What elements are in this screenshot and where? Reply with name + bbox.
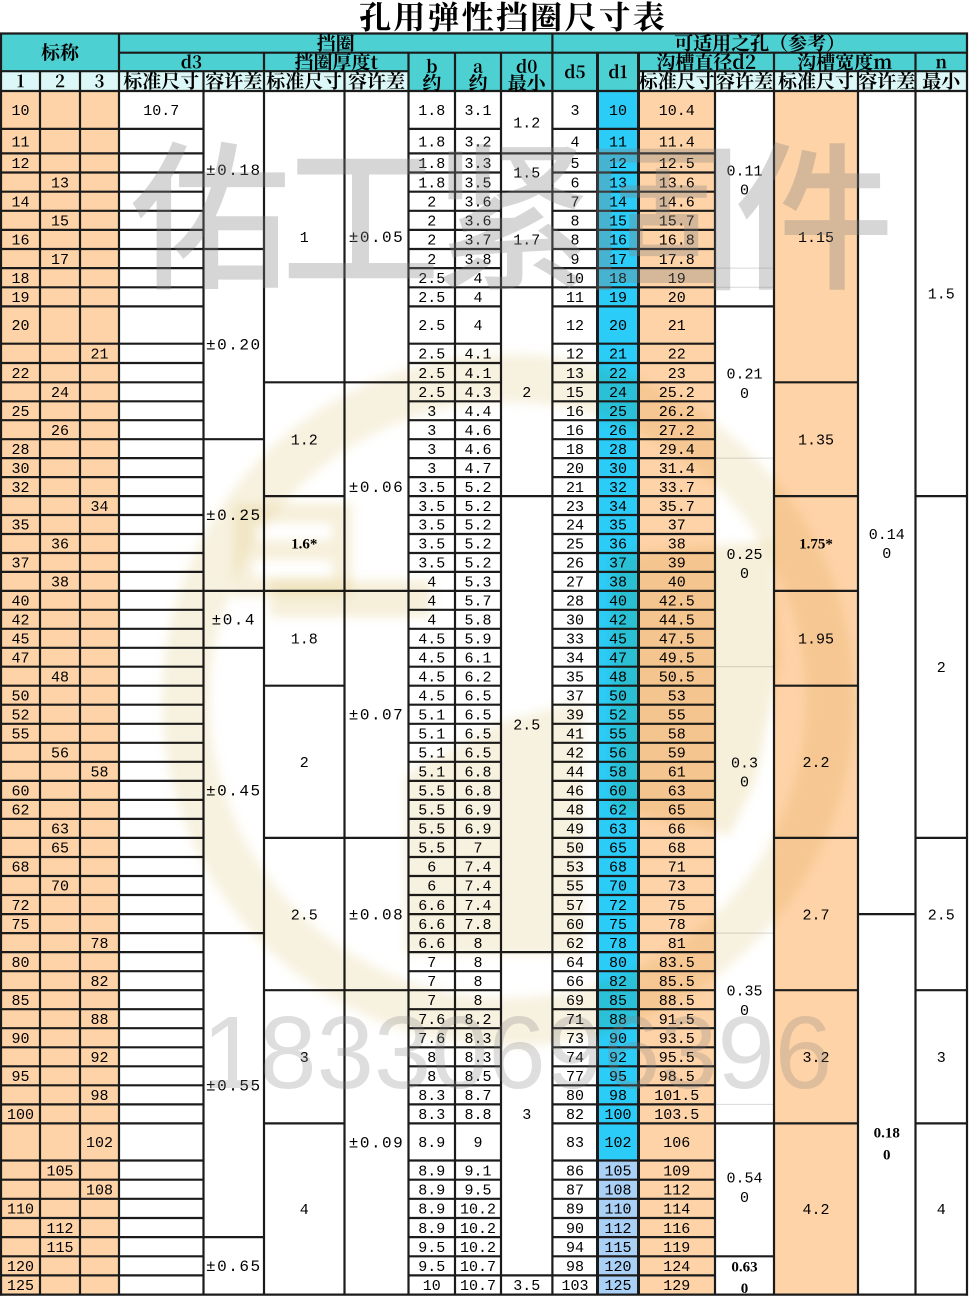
svg-text:80: 80 (609, 955, 627, 972)
svg-text:110: 110 (7, 1202, 34, 1219)
svg-text:5.3: 5.3 (464, 575, 491, 592)
svg-text:1.8: 1.8 (418, 103, 445, 120)
svg-text:1.8: 1.8 (418, 175, 445, 192)
svg-text:20: 20 (668, 290, 686, 307)
svg-text:120: 120 (7, 1259, 34, 1276)
svg-text:32: 32 (11, 480, 29, 497)
svg-text:80: 80 (11, 955, 29, 972)
svg-text:78: 78 (90, 936, 108, 953)
svg-text:18: 18 (11, 271, 29, 288)
svg-text:125: 125 (7, 1278, 34, 1295)
svg-text:4.5: 4.5 (418, 669, 445, 686)
svg-text:94: 94 (566, 1240, 584, 1257)
svg-text:87: 87 (566, 1182, 584, 1199)
svg-text:24: 24 (566, 518, 584, 535)
svg-text:3: 3 (570, 103, 579, 120)
svg-text:38: 38 (51, 575, 69, 592)
svg-text:120: 120 (604, 1259, 631, 1276)
svg-text:115: 115 (604, 1240, 631, 1257)
svg-text:9.5: 9.5 (464, 1182, 491, 1199)
svg-text:50: 50 (11, 688, 29, 705)
svg-text:20: 20 (566, 461, 584, 478)
svg-text:20: 20 (11, 318, 29, 335)
svg-text:105: 105 (46, 1163, 73, 1180)
svg-text:82: 82 (90, 974, 108, 991)
svg-text:8.9: 8.9 (418, 1202, 445, 1219)
svg-text:20: 20 (609, 318, 627, 335)
svg-text:2: 2 (427, 233, 436, 250)
svg-text:5.1: 5.1 (418, 727, 445, 744)
svg-text:10.7: 10.7 (143, 103, 179, 120)
svg-text:35.7: 35.7 (659, 499, 695, 516)
svg-text:16: 16 (609, 233, 627, 250)
svg-text:17: 17 (51, 252, 69, 269)
svg-text:21: 21 (566, 480, 584, 497)
svg-text:106: 106 (663, 1135, 690, 1152)
svg-text:105: 105 (604, 1163, 631, 1180)
svg-text:37: 37 (11, 556, 29, 573)
svg-text:3.5: 3.5 (418, 499, 445, 516)
svg-text:10: 10 (11, 103, 29, 120)
svg-text:34: 34 (90, 499, 108, 516)
svg-text:58: 58 (90, 765, 108, 782)
svg-text:48: 48 (51, 669, 69, 686)
svg-text:5.2: 5.2 (464, 499, 491, 516)
svg-text:42: 42 (11, 613, 29, 630)
svg-text:5.2: 5.2 (464, 480, 491, 497)
svg-text:25: 25 (566, 537, 584, 554)
svg-text:0: 0 (740, 1190, 749, 1207)
svg-text:4: 4 (473, 318, 482, 335)
svg-text:86: 86 (566, 1163, 584, 1180)
svg-text:4: 4 (937, 1202, 946, 1219)
svg-text:22: 22 (11, 366, 29, 383)
svg-text:72: 72 (609, 898, 627, 915)
svg-text:0.18: 0.18 (874, 1126, 900, 1142)
svg-text:4.2: 4.2 (802, 1202, 829, 1219)
svg-text:5.7: 5.7 (464, 594, 491, 611)
svg-text:4: 4 (473, 290, 482, 307)
svg-text:0.21: 0.21 (726, 367, 762, 384)
svg-text:10.7: 10.7 (460, 1278, 496, 1295)
svg-text:3: 3 (427, 461, 436, 478)
svg-text:3.5: 3.5 (418, 518, 445, 535)
svg-text:71: 71 (668, 860, 686, 877)
svg-text:21: 21 (609, 347, 627, 364)
svg-text:9: 9 (473, 1135, 482, 1152)
svg-text:13: 13 (51, 175, 69, 192)
svg-text:5.1: 5.1 (418, 707, 445, 724)
svg-text:34: 34 (609, 499, 627, 516)
svg-text:16: 16 (11, 233, 29, 250)
svg-text:90: 90 (11, 1031, 29, 1048)
svg-text:70: 70 (609, 879, 627, 896)
svg-text:3.5: 3.5 (418, 556, 445, 573)
svg-text:21: 21 (90, 347, 108, 364)
svg-text:8.9: 8.9 (418, 1182, 445, 1199)
svg-text:5.2: 5.2 (464, 518, 491, 535)
svg-text:9.1: 9.1 (464, 1163, 491, 1180)
svg-text:14: 14 (11, 194, 29, 211)
svg-text:62: 62 (11, 803, 29, 820)
svg-text:1.8: 1.8 (291, 632, 318, 649)
svg-text:3: 3 (937, 1050, 946, 1067)
svg-text:33.7: 33.7 (659, 480, 695, 497)
svg-text:40: 40 (11, 594, 29, 611)
svg-text:75: 75 (668, 898, 686, 915)
svg-text:10.2: 10.2 (460, 1202, 496, 1219)
svg-text:±0.20: ±0.20 (206, 336, 262, 354)
svg-text:10: 10 (423, 1278, 441, 1295)
svg-text:6.1: 6.1 (464, 651, 491, 668)
svg-text:2: 2 (427, 214, 436, 231)
svg-text:75: 75 (609, 917, 627, 934)
svg-text:95: 95 (11, 1069, 29, 1086)
svg-text:28: 28 (11, 442, 29, 459)
svg-text:0: 0 (741, 1281, 749, 1296)
svg-text:5.2: 5.2 (464, 537, 491, 554)
svg-text:65: 65 (51, 841, 69, 858)
svg-text:36: 36 (609, 537, 627, 554)
svg-text:68: 68 (609, 860, 627, 877)
svg-text:1.5: 1.5 (928, 287, 955, 304)
svg-text:±0.08: ±0.08 (349, 906, 405, 924)
svg-text:68: 68 (11, 860, 29, 877)
svg-text:8.9: 8.9 (418, 1163, 445, 1180)
svg-text:19: 19 (11, 290, 29, 307)
svg-text:21: 21 (668, 318, 686, 335)
svg-text:0: 0 (882, 546, 891, 563)
svg-text:5.9: 5.9 (464, 632, 491, 649)
svg-text:10.4: 10.4 (659, 103, 695, 120)
svg-text:92: 92 (90, 1050, 108, 1067)
svg-text:1.2: 1.2 (513, 115, 540, 132)
svg-text:12: 12 (566, 318, 584, 335)
svg-text:78: 78 (668, 917, 686, 934)
svg-text:112: 112 (46, 1221, 73, 1238)
svg-text:15: 15 (51, 214, 69, 231)
svg-text:98: 98 (90, 1088, 108, 1105)
svg-text:103: 103 (561, 1278, 588, 1295)
svg-text:102: 102 (86, 1135, 113, 1152)
svg-text:90: 90 (566, 1221, 584, 1238)
svg-text:4.5: 4.5 (418, 632, 445, 649)
svg-text:68: 68 (668, 841, 686, 858)
svg-text:3.5: 3.5 (418, 480, 445, 497)
svg-text:35: 35 (11, 518, 29, 535)
svg-text:12: 12 (11, 156, 29, 173)
svg-text:24: 24 (51, 385, 69, 402)
svg-text:26: 26 (51, 423, 69, 440)
svg-text:33: 33 (566, 632, 584, 649)
svg-text:2.7: 2.7 (802, 907, 829, 924)
svg-text:2: 2 (300, 755, 309, 772)
svg-text:10.2: 10.2 (460, 1221, 496, 1238)
svg-text:102: 102 (604, 1135, 631, 1152)
svg-text:112: 112 (663, 1182, 690, 1199)
svg-text:9.5: 9.5 (418, 1240, 445, 1257)
svg-text:124: 124 (663, 1259, 690, 1276)
svg-text:4.6: 4.6 (464, 423, 491, 440)
svg-text:2.5: 2.5 (928, 907, 955, 924)
svg-text:4.5: 4.5 (418, 688, 445, 705)
svg-text:0: 0 (883, 1148, 891, 1164)
svg-text:1.35: 1.35 (798, 432, 834, 449)
svg-text:8: 8 (570, 214, 579, 231)
svg-text:18: 18 (566, 442, 584, 459)
svg-text:23: 23 (566, 499, 584, 516)
svg-text:18330696396: 18330696396 (202, 995, 832, 1110)
svg-text:10.2: 10.2 (460, 1240, 496, 1257)
svg-text:83: 83 (566, 1135, 584, 1152)
svg-text:0.63: 0.63 (731, 1260, 757, 1276)
svg-text:110: 110 (604, 1202, 631, 1219)
svg-text:3.5: 3.5 (513, 1278, 540, 1295)
svg-text:9.5: 9.5 (418, 1259, 445, 1276)
svg-text:55: 55 (11, 727, 29, 744)
svg-text:108: 108 (604, 1182, 631, 1199)
svg-text:2: 2 (937, 660, 946, 677)
svg-text:6.5: 6.5 (464, 688, 491, 705)
svg-text:100: 100 (7, 1107, 34, 1124)
svg-text:36: 36 (51, 537, 69, 554)
svg-text:8.9: 8.9 (418, 1221, 445, 1238)
svg-text:0.14: 0.14 (869, 527, 905, 544)
svg-text:3.5: 3.5 (418, 537, 445, 554)
svg-text:3: 3 (427, 423, 436, 440)
svg-text:2.5: 2.5 (418, 290, 445, 307)
svg-text:115: 115 (46, 1240, 73, 1257)
svg-text:109: 109 (663, 1163, 690, 1180)
svg-text:30: 30 (609, 461, 627, 478)
svg-text:85: 85 (11, 993, 29, 1010)
svg-text:17: 17 (609, 252, 627, 269)
svg-text:±0.65: ±0.65 (206, 1258, 262, 1276)
svg-text:10: 10 (609, 103, 627, 120)
svg-text:32: 32 (609, 480, 627, 497)
svg-text:89: 89 (566, 1202, 584, 1219)
svg-text:52: 52 (11, 707, 29, 724)
svg-text:37: 37 (668, 518, 686, 535)
svg-text:1.8: 1.8 (418, 134, 445, 151)
svg-text:129: 129 (663, 1278, 690, 1295)
svg-text:7: 7 (427, 955, 436, 972)
svg-text:63: 63 (51, 822, 69, 839)
svg-text:±0.07: ±0.07 (349, 707, 405, 725)
svg-text:35: 35 (609, 518, 627, 535)
svg-text:125: 125 (604, 1278, 631, 1295)
svg-text:6.5: 6.5 (464, 707, 491, 724)
svg-text:3: 3 (427, 442, 436, 459)
svg-text:4: 4 (300, 1202, 309, 1219)
svg-text:16: 16 (566, 423, 584, 440)
svg-text:34: 34 (566, 651, 584, 668)
svg-text:88: 88 (90, 1012, 108, 1029)
svg-text:4.4: 4.4 (464, 404, 491, 421)
svg-text:65: 65 (609, 841, 627, 858)
svg-text:4.6: 4.6 (464, 442, 491, 459)
svg-text:116: 116 (663, 1221, 690, 1238)
svg-text:22: 22 (668, 347, 686, 364)
svg-text:66: 66 (566, 974, 584, 991)
svg-text:11: 11 (566, 290, 584, 307)
svg-text:70: 70 (51, 879, 69, 896)
svg-text:0.11: 0.11 (726, 163, 762, 180)
svg-text:5.2: 5.2 (464, 556, 491, 573)
svg-text:30: 30 (566, 613, 584, 630)
svg-text:±0.09: ±0.09 (349, 1135, 405, 1153)
svg-text:28: 28 (609, 442, 627, 459)
svg-text:112: 112 (604, 1221, 631, 1238)
svg-text:8: 8 (473, 974, 482, 991)
svg-text:45: 45 (11, 632, 29, 649)
svg-text:26: 26 (566, 556, 584, 573)
svg-text:3.1: 3.1 (464, 103, 491, 120)
svg-text:64: 64 (566, 955, 584, 972)
svg-text:56: 56 (51, 746, 69, 763)
svg-text:75: 75 (11, 917, 29, 934)
svg-text:108: 108 (86, 1182, 113, 1199)
svg-text:0.54: 0.54 (726, 1171, 762, 1188)
svg-text:19: 19 (609, 290, 627, 307)
svg-text:6.2: 6.2 (464, 669, 491, 686)
svg-text:47: 47 (11, 651, 29, 668)
svg-text:27: 27 (566, 575, 584, 592)
svg-text:4.7: 4.7 (464, 461, 491, 478)
svg-text:25: 25 (11, 404, 29, 421)
svg-text:±0.06: ±0.06 (349, 479, 405, 497)
svg-text:23: 23 (668, 366, 686, 383)
svg-text:4.5: 4.5 (418, 651, 445, 668)
svg-text:114: 114 (663, 1202, 690, 1219)
svg-text:2: 2 (427, 194, 436, 211)
svg-text:8.9: 8.9 (418, 1135, 445, 1152)
svg-text:78: 78 (609, 936, 627, 953)
svg-text:35: 35 (566, 669, 584, 686)
svg-text:30: 30 (11, 461, 29, 478)
svg-text:72: 72 (11, 898, 29, 915)
svg-text:15: 15 (609, 214, 627, 231)
svg-text:8: 8 (473, 955, 482, 972)
svg-text:11: 11 (11, 134, 29, 151)
svg-text:2.5: 2.5 (418, 318, 445, 335)
svg-text:73: 73 (668, 879, 686, 896)
svg-text:60: 60 (11, 784, 29, 801)
svg-text:119: 119 (663, 1240, 690, 1257)
svg-text:0: 0 (740, 386, 749, 403)
svg-text:6: 6 (570, 175, 579, 192)
svg-text:10.7: 10.7 (460, 1259, 496, 1276)
svg-text:1: 1 (300, 230, 309, 247)
svg-text:63: 63 (609, 822, 627, 839)
svg-text:28: 28 (566, 594, 584, 611)
svg-text:5.8: 5.8 (464, 613, 491, 630)
svg-text:98: 98 (566, 1259, 584, 1276)
